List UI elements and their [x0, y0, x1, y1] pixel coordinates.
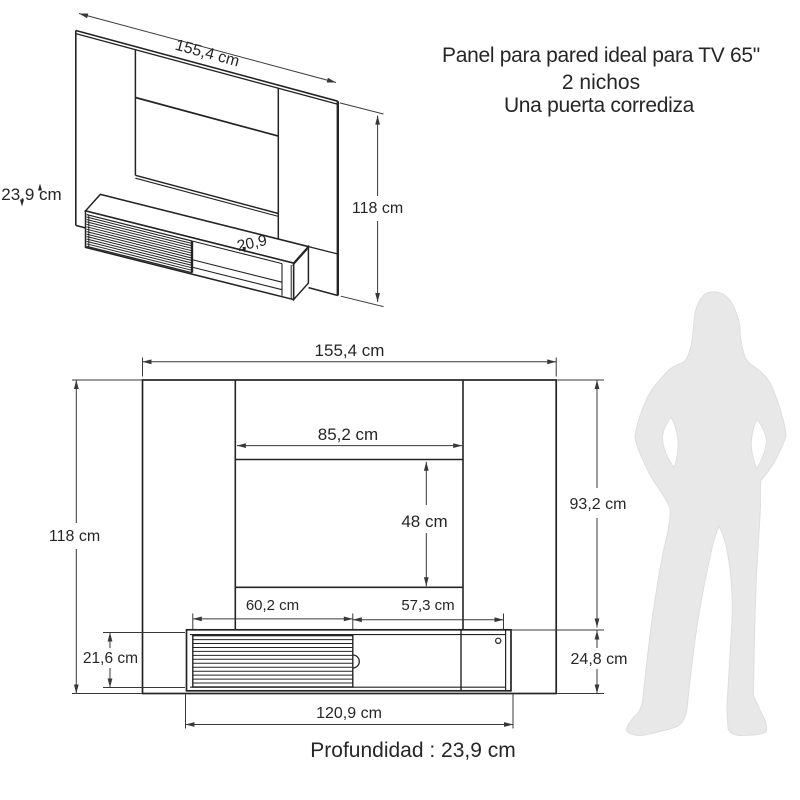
svg-text:155,4 cm: 155,4 cm — [315, 341, 385, 360]
svg-text:57,3 cm: 57,3 cm — [401, 597, 454, 614]
svg-text:Una puerta corrediza: Una puerta corrediza — [504, 94, 695, 117]
svg-text:24,8 cm: 24,8 cm — [571, 651, 628, 668]
svg-text:60,2 cm: 60,2 cm — [246, 597, 299, 614]
svg-text:85,2 cm: 85,2 cm — [318, 425, 378, 444]
svg-text:118 cm: 118 cm — [49, 528, 100, 545]
svg-text:93,2 cm: 93,2 cm — [570, 496, 627, 513]
svg-text:Panel para pared ideal para TV: Panel para pared ideal para TV 65" — [442, 44, 760, 67]
svg-text:2 nichos: 2 nichos — [562, 71, 640, 94]
svg-text:120,9 cm: 120,9 cm — [316, 705, 382, 722]
svg-text:118 cm: 118 cm — [352, 200, 403, 217]
svg-text:48 cm: 48 cm — [401, 512, 447, 531]
svg-text:21,6 cm: 21,6 cm — [83, 650, 138, 667]
svg-text:23,9 cm: 23,9 cm — [1, 185, 61, 204]
svg-text:Profundidad : 23,9 cm: Profundidad : 23,9 cm — [310, 739, 515, 762]
